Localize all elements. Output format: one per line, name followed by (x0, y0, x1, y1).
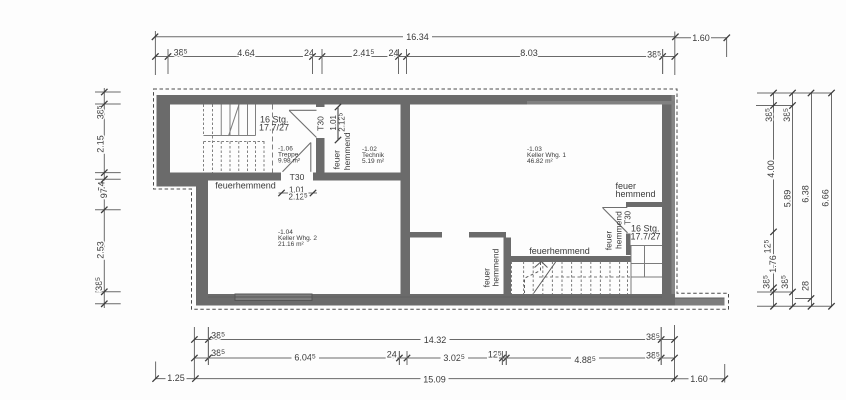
svg-text:1.76: 1.76 (768, 255, 778, 273)
svg-text:1.25: 1.25 (167, 373, 185, 383)
svg-text:hemmend: hemmend (616, 189, 656, 199)
svg-text:5.89: 5.89 (783, 190, 793, 208)
svg-text:5.19 m²: 5.19 m² (362, 158, 385, 165)
svg-text:4.64: 4.64 (237, 48, 255, 58)
svg-text:24: 24 (388, 48, 398, 58)
svg-text:16.34: 16.34 (406, 32, 429, 42)
svg-text:T30: T30 (315, 116, 325, 131)
svg-text:14.32: 14.32 (424, 335, 447, 345)
svg-text:feuer: feuer (603, 231, 613, 251)
svg-text:4.00: 4.00 (766, 160, 776, 178)
svg-text:hemmend: hemmend (342, 132, 352, 170)
svg-text:17.7/27: 17.7/27 (259, 122, 289, 132)
svg-text:T30: T30 (290, 172, 305, 182)
svg-text:6.38: 6.38 (801, 185, 811, 203)
svg-text:17.7/27: 17.7/27 (631, 232, 661, 242)
svg-text:feuer: feuer (332, 150, 342, 170)
svg-text:8.03: 8.03 (520, 48, 538, 58)
svg-text:46.82 m²: 46.82 m² (527, 158, 553, 165)
svg-text:21.16 m²: 21.16 m² (278, 241, 304, 248)
svg-text:feuerhemmend: feuerhemmend (529, 246, 590, 256)
svg-text:feuerhemmend: feuerhemmend (215, 180, 276, 190)
svg-text:9.98 m²: 9.98 m² (278, 158, 301, 165)
svg-text:28: 28 (801, 281, 811, 291)
svg-text:97: 97 (99, 188, 109, 198)
svg-text:2.15: 2.15 (96, 135, 106, 153)
svg-text:24: 24 (387, 350, 397, 360)
svg-text:hemmend: hemmend (613, 211, 623, 249)
svg-text:6.66: 6.66 (821, 189, 831, 207)
svg-text:1.60: 1.60 (690, 374, 708, 384)
svg-text:2.53: 2.53 (96, 241, 106, 259)
svg-text:1.60: 1.60 (692, 33, 710, 43)
svg-text:hemmend: hemmend (491, 248, 501, 286)
svg-text:15.09: 15.09 (423, 375, 446, 385)
